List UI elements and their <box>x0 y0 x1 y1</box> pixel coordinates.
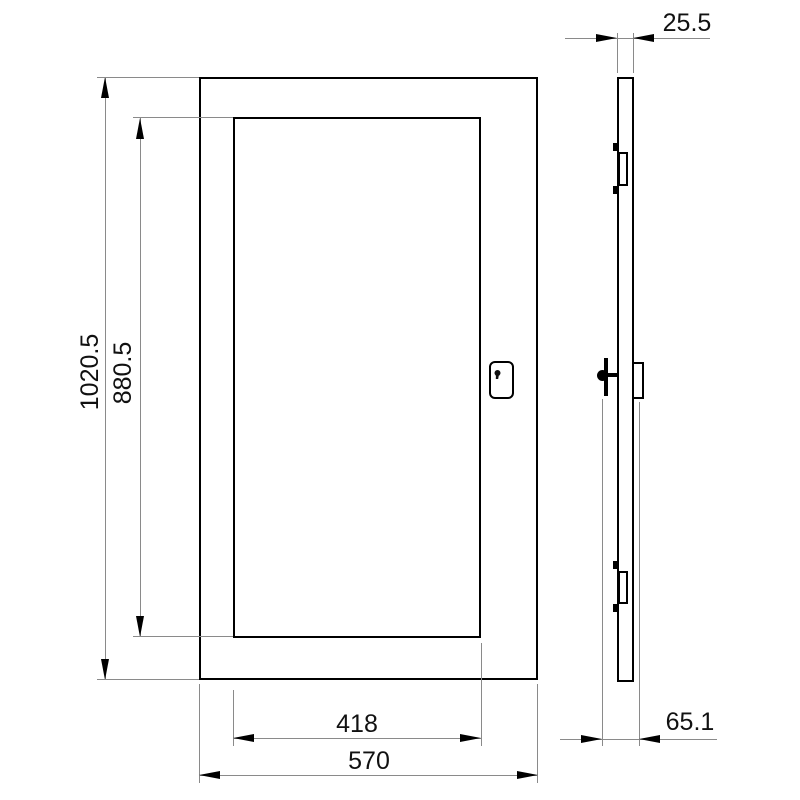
dim-outer-width-label: 570 <box>329 748 409 774</box>
lock-lever-pivot <box>597 370 608 381</box>
arrowhead-up-icon <box>136 118 144 139</box>
extension-line <box>133 117 233 118</box>
dim-inner-height-label: 880.5 <box>110 308 136 438</box>
upper-latch-pin-bottom <box>613 186 619 194</box>
arrowhead-up-icon <box>101 77 109 98</box>
dim-line <box>233 738 481 739</box>
arrowhead-down-icon <box>136 616 144 637</box>
arrowhead-right-icon <box>581 735 602 743</box>
lower-latch-pin-top <box>613 561 619 569</box>
dim-line <box>140 118 141 637</box>
extension-line <box>639 402 640 746</box>
extension-line <box>199 684 200 783</box>
dim-line <box>199 775 538 776</box>
keyhole-icon <box>492 369 503 381</box>
handle-profile <box>632 362 644 399</box>
extension-line <box>97 679 199 680</box>
extension-line <box>97 77 199 78</box>
dim-overall-depth-label: 65.1 <box>650 709 730 735</box>
arrowhead-left-icon <box>233 734 254 742</box>
arrowhead-down-icon <box>101 659 109 680</box>
arrowhead-right-icon <box>460 734 481 742</box>
door-window-outline <box>233 117 481 638</box>
arrowhead-right-icon <box>596 34 617 42</box>
extension-line <box>481 643 482 746</box>
dim-outer-height-label: 1020.5 <box>77 297 103 447</box>
upper-latch-plate <box>618 152 628 186</box>
arrowhead-left-icon <box>199 771 220 779</box>
extension-line <box>617 33 618 73</box>
extension-line <box>133 636 233 637</box>
dim-door-thickness-label: 25.5 <box>647 10 727 36</box>
lower-latch-pin-bottom <box>613 604 619 612</box>
dim-window-width-label: 418 <box>317 711 397 737</box>
lower-latch-plate <box>618 571 628 604</box>
drawing-canvas: 1020.5 880.5 418 570 25.5 <box>0 0 800 800</box>
arrowhead-left-icon <box>639 735 660 743</box>
extension-line <box>537 684 538 783</box>
arrowhead-right-icon <box>517 771 538 779</box>
upper-latch-pin-top <box>613 143 619 151</box>
dim-line <box>105 77 106 680</box>
extension-line <box>602 399 603 746</box>
